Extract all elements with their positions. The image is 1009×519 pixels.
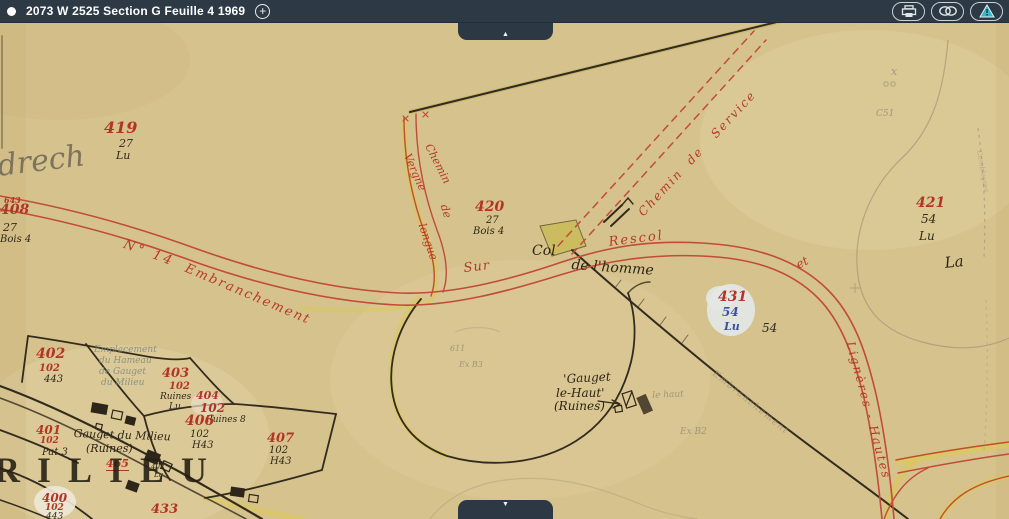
document-title: 2073 W 2525 Section G Feuille 4 1969 [26, 4, 245, 18]
pencil-lines [430, 40, 1009, 519]
paper-texture [0, 0, 1009, 519]
chevron-down-icon: ▼ [502, 500, 509, 510]
yellow-highlights [205, 120, 1009, 519]
whiteout-patches [34, 284, 755, 518]
permalink-button[interactable] [931, 2, 964, 21]
archive-map-viewer: 41927Lu64340827Bois 442027Bois 442154LuC… [0, 0, 1009, 519]
scroll-down-tab[interactable]: ▼ [458, 500, 553, 519]
print-button[interactable] [892, 2, 925, 21]
printer-icon [901, 5, 917, 18]
warning-triangle-icon [979, 4, 995, 18]
header-bar: 2073 W 2525 Section G Feuille 4 1969 + [0, 0, 1009, 23]
ink-boundaries [0, 20, 908, 519]
add-button[interactable]: + [255, 4, 270, 19]
chain-links-icon [938, 5, 958, 17]
building-marks [91, 391, 652, 503]
chevron-up-icon: ▲ [502, 30, 509, 40]
scroll-up-tab[interactable]: ▲ [458, 22, 553, 40]
red-roads [0, 31, 1009, 519]
map-artwork [0, 0, 1009, 519]
status-dot-icon [7, 7, 16, 16]
report-problem-button[interactable] [970, 2, 1003, 21]
map-canvas[interactable] [0, 0, 1009, 519]
